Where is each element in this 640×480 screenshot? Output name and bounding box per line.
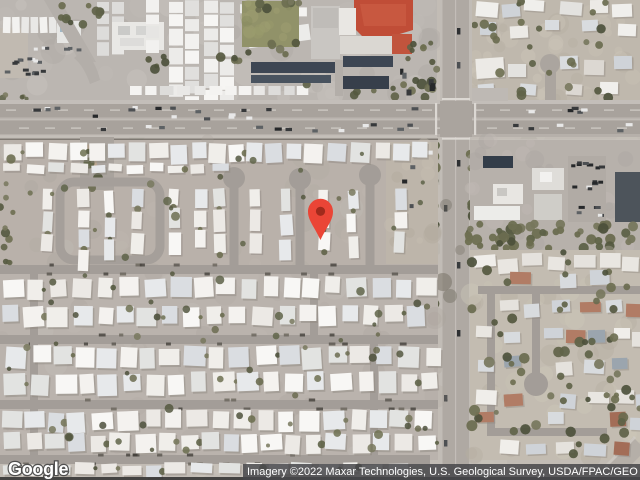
svg-text:Google: Google <box>8 459 68 479</box>
svg-text:Imagery ©2022 Maxar Technologi: Imagery ©2022 Maxar Technologies, U.S. G… <box>247 466 638 478</box>
